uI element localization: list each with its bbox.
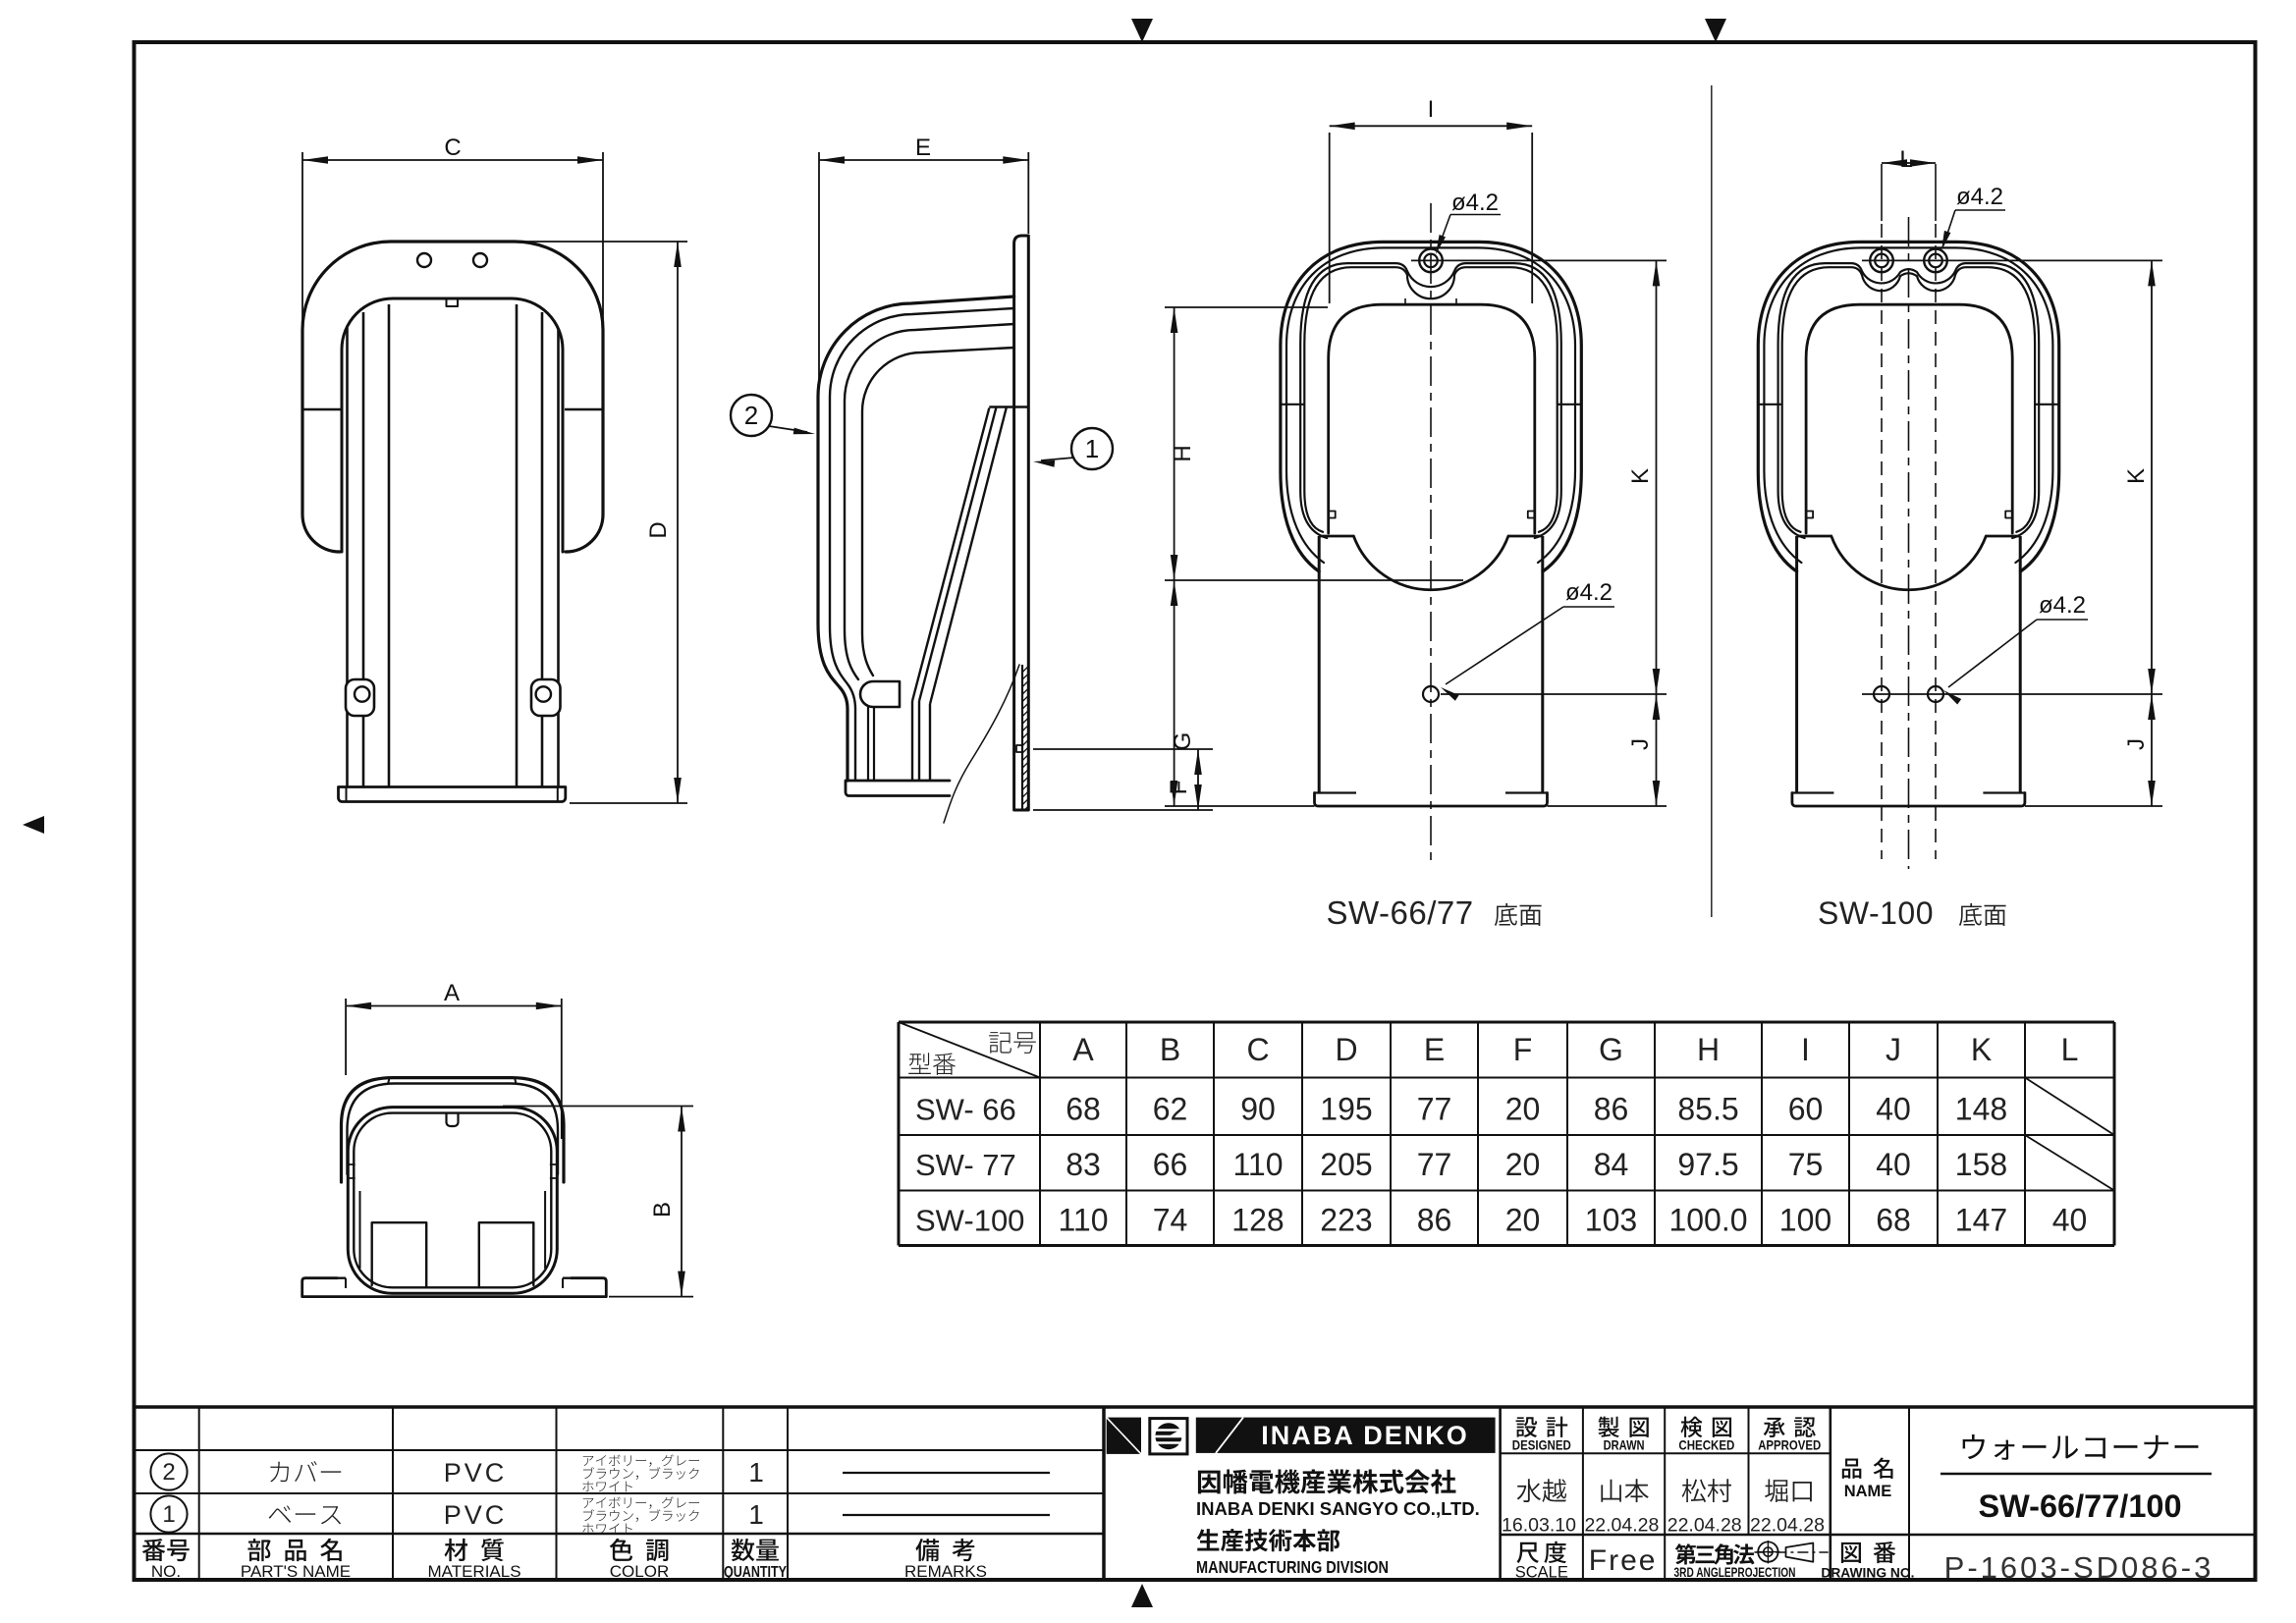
- svg-text:84: 84: [1594, 1147, 1629, 1182]
- svg-text:97.5: 97.5: [1677, 1147, 1738, 1182]
- svg-text:62: 62: [1153, 1092, 1188, 1127]
- svg-text:NAME: NAME: [1844, 1483, 1892, 1500]
- svg-text:F: F: [1166, 781, 1192, 795]
- svg-text:ø4.2: ø4.2: [2039, 592, 2086, 619]
- svg-text:158: 158: [1955, 1147, 2007, 1182]
- svg-text:G: G: [1599, 1032, 1623, 1067]
- svg-text:90: 90: [1240, 1092, 1276, 1127]
- svg-text:110: 110: [1058, 1203, 1108, 1238]
- svg-text:K: K: [1971, 1032, 1992, 1067]
- svg-text:86: 86: [1594, 1092, 1629, 1127]
- svg-text:148: 148: [1955, 1092, 2007, 1127]
- svg-text:40: 40: [2052, 1203, 2088, 1238]
- svg-text:B: B: [1160, 1032, 1180, 1067]
- svg-text:SW-100: SW-100: [915, 1204, 1024, 1238]
- svg-text:147: 147: [1955, 1203, 2007, 1238]
- svg-text:103: 103: [1585, 1203, 1637, 1238]
- svg-text:QUANTITY: QUANTITY: [724, 1564, 788, 1581]
- svg-text:J: J: [1627, 738, 1654, 750]
- svg-text:3RD ANGLEPROJECTION: 3RD ANGLEPROJECTION: [1674, 1564, 1796, 1580]
- svg-text:68: 68: [1876, 1203, 1911, 1238]
- svg-text:I: I: [1801, 1032, 1810, 1067]
- svg-text:D: D: [645, 521, 672, 538]
- svg-text:PVC: PVC: [444, 1500, 508, 1530]
- svg-text:A: A: [1072, 1032, 1094, 1067]
- svg-text:PVC: PVC: [444, 1458, 508, 1488]
- svg-text:REMARKS: REMARKS: [904, 1562, 987, 1581]
- svg-text:I: I: [1428, 96, 1435, 123]
- svg-text:195: 195: [1320, 1092, 1372, 1127]
- svg-text:110: 110: [1232, 1147, 1283, 1182]
- svg-text:85.5: 85.5: [1677, 1092, 1738, 1127]
- svg-text:CHECKED: CHECKED: [1678, 1438, 1734, 1453]
- svg-text:K: K: [1627, 468, 1654, 484]
- svg-text:40: 40: [1876, 1092, 1911, 1127]
- svg-text:20: 20: [1505, 1092, 1541, 1127]
- svg-text:83: 83: [1066, 1147, 1101, 1182]
- svg-text:20: 20: [1505, 1203, 1541, 1238]
- svg-text:INABA DENKO: INABA DENKO: [1261, 1421, 1469, 1450]
- svg-text:E: E: [1424, 1032, 1445, 1067]
- svg-text:1: 1: [748, 1457, 764, 1488]
- svg-text:DRAWING NO.: DRAWING NO.: [1821, 1566, 1914, 1581]
- svg-text:ø4.2: ø4.2: [1956, 184, 2003, 210]
- svg-text:SW-100: SW-100: [1818, 895, 1934, 931]
- svg-text:P-1603-SD086-3: P-1603-SD086-3: [1944, 1550, 2214, 1585]
- svg-text:COLOR: COLOR: [610, 1562, 669, 1581]
- svg-text:J: J: [2123, 738, 2150, 750]
- svg-text:16.03.10: 16.03.10: [1502, 1515, 1576, 1537]
- svg-text:Free: Free: [1589, 1544, 1658, 1577]
- svg-text:J: J: [1886, 1032, 1901, 1067]
- svg-text:1: 1: [1085, 434, 1099, 463]
- svg-text:C: C: [444, 135, 461, 161]
- svg-text:20: 20: [1505, 1147, 1541, 1182]
- svg-text:INABA DENKI SANGYO CO.,LTD.: INABA DENKI SANGYO CO.,LTD.: [1196, 1498, 1480, 1519]
- svg-text:86: 86: [1417, 1203, 1452, 1238]
- svg-text:SW- 66: SW- 66: [915, 1093, 1016, 1127]
- svg-text:68: 68: [1066, 1092, 1101, 1127]
- svg-text:60: 60: [1788, 1092, 1824, 1127]
- svg-text:MANUFACTURING DIVISION: MANUFACTURING DIVISION: [1196, 1557, 1389, 1577]
- svg-text:C: C: [1246, 1032, 1269, 1067]
- svg-text:E: E: [915, 135, 931, 161]
- svg-text:ø4.2: ø4.2: [1565, 579, 1613, 606]
- svg-text:1: 1: [162, 1501, 175, 1528]
- svg-text:K: K: [2123, 468, 2150, 484]
- svg-text:L: L: [2061, 1032, 2079, 1067]
- svg-text:66: 66: [1153, 1147, 1188, 1182]
- svg-text:205: 205: [1320, 1147, 1372, 1182]
- svg-text:74: 74: [1153, 1203, 1188, 1238]
- svg-text:SW-66/77/100: SW-66/77/100: [1978, 1488, 2181, 1524]
- svg-text:NO.: NO.: [151, 1562, 181, 1581]
- svg-text:MATERIALS: MATERIALS: [427, 1562, 520, 1581]
- svg-text:A: A: [444, 980, 460, 1006]
- svg-text:22.04.28: 22.04.28: [1667, 1515, 1742, 1537]
- svg-text:D: D: [1335, 1032, 1357, 1067]
- svg-text:2: 2: [162, 1459, 175, 1486]
- svg-text:128: 128: [1231, 1203, 1284, 1238]
- svg-text:75: 75: [1788, 1147, 1824, 1182]
- svg-text:L: L: [1899, 146, 1912, 173]
- svg-text:ø4.2: ø4.2: [1451, 189, 1499, 216]
- svg-text:77: 77: [1417, 1147, 1452, 1182]
- svg-text:100: 100: [1779, 1203, 1831, 1238]
- svg-text:22.04.28: 22.04.28: [1584, 1515, 1659, 1537]
- svg-text:APPROVED: APPROVED: [1758, 1438, 1821, 1453]
- svg-text:PART'S NAME: PART'S NAME: [241, 1562, 351, 1581]
- svg-text:22.04.28: 22.04.28: [1750, 1515, 1825, 1537]
- svg-text:B: B: [649, 1202, 676, 1217]
- svg-text:1: 1: [748, 1499, 764, 1530]
- svg-text:H: H: [1697, 1032, 1720, 1067]
- svg-text:G: G: [1170, 732, 1196, 751]
- svg-text:SCALE: SCALE: [1515, 1564, 1568, 1582]
- svg-text:H: H: [1170, 445, 1196, 461]
- svg-text:SW-66/77: SW-66/77: [1327, 894, 1474, 931]
- svg-text:DRAWN: DRAWN: [1604, 1438, 1645, 1453]
- svg-text:2: 2: [744, 401, 758, 430]
- svg-text:40: 40: [1876, 1147, 1911, 1182]
- svg-text:SW- 77: SW- 77: [915, 1148, 1016, 1182]
- svg-text:77: 77: [1417, 1092, 1452, 1127]
- svg-text:223: 223: [1320, 1203, 1372, 1238]
- svg-text:DESIGNED: DESIGNED: [1512, 1438, 1571, 1453]
- svg-text:100.0: 100.0: [1668, 1203, 1747, 1238]
- svg-text:F: F: [1513, 1032, 1533, 1067]
